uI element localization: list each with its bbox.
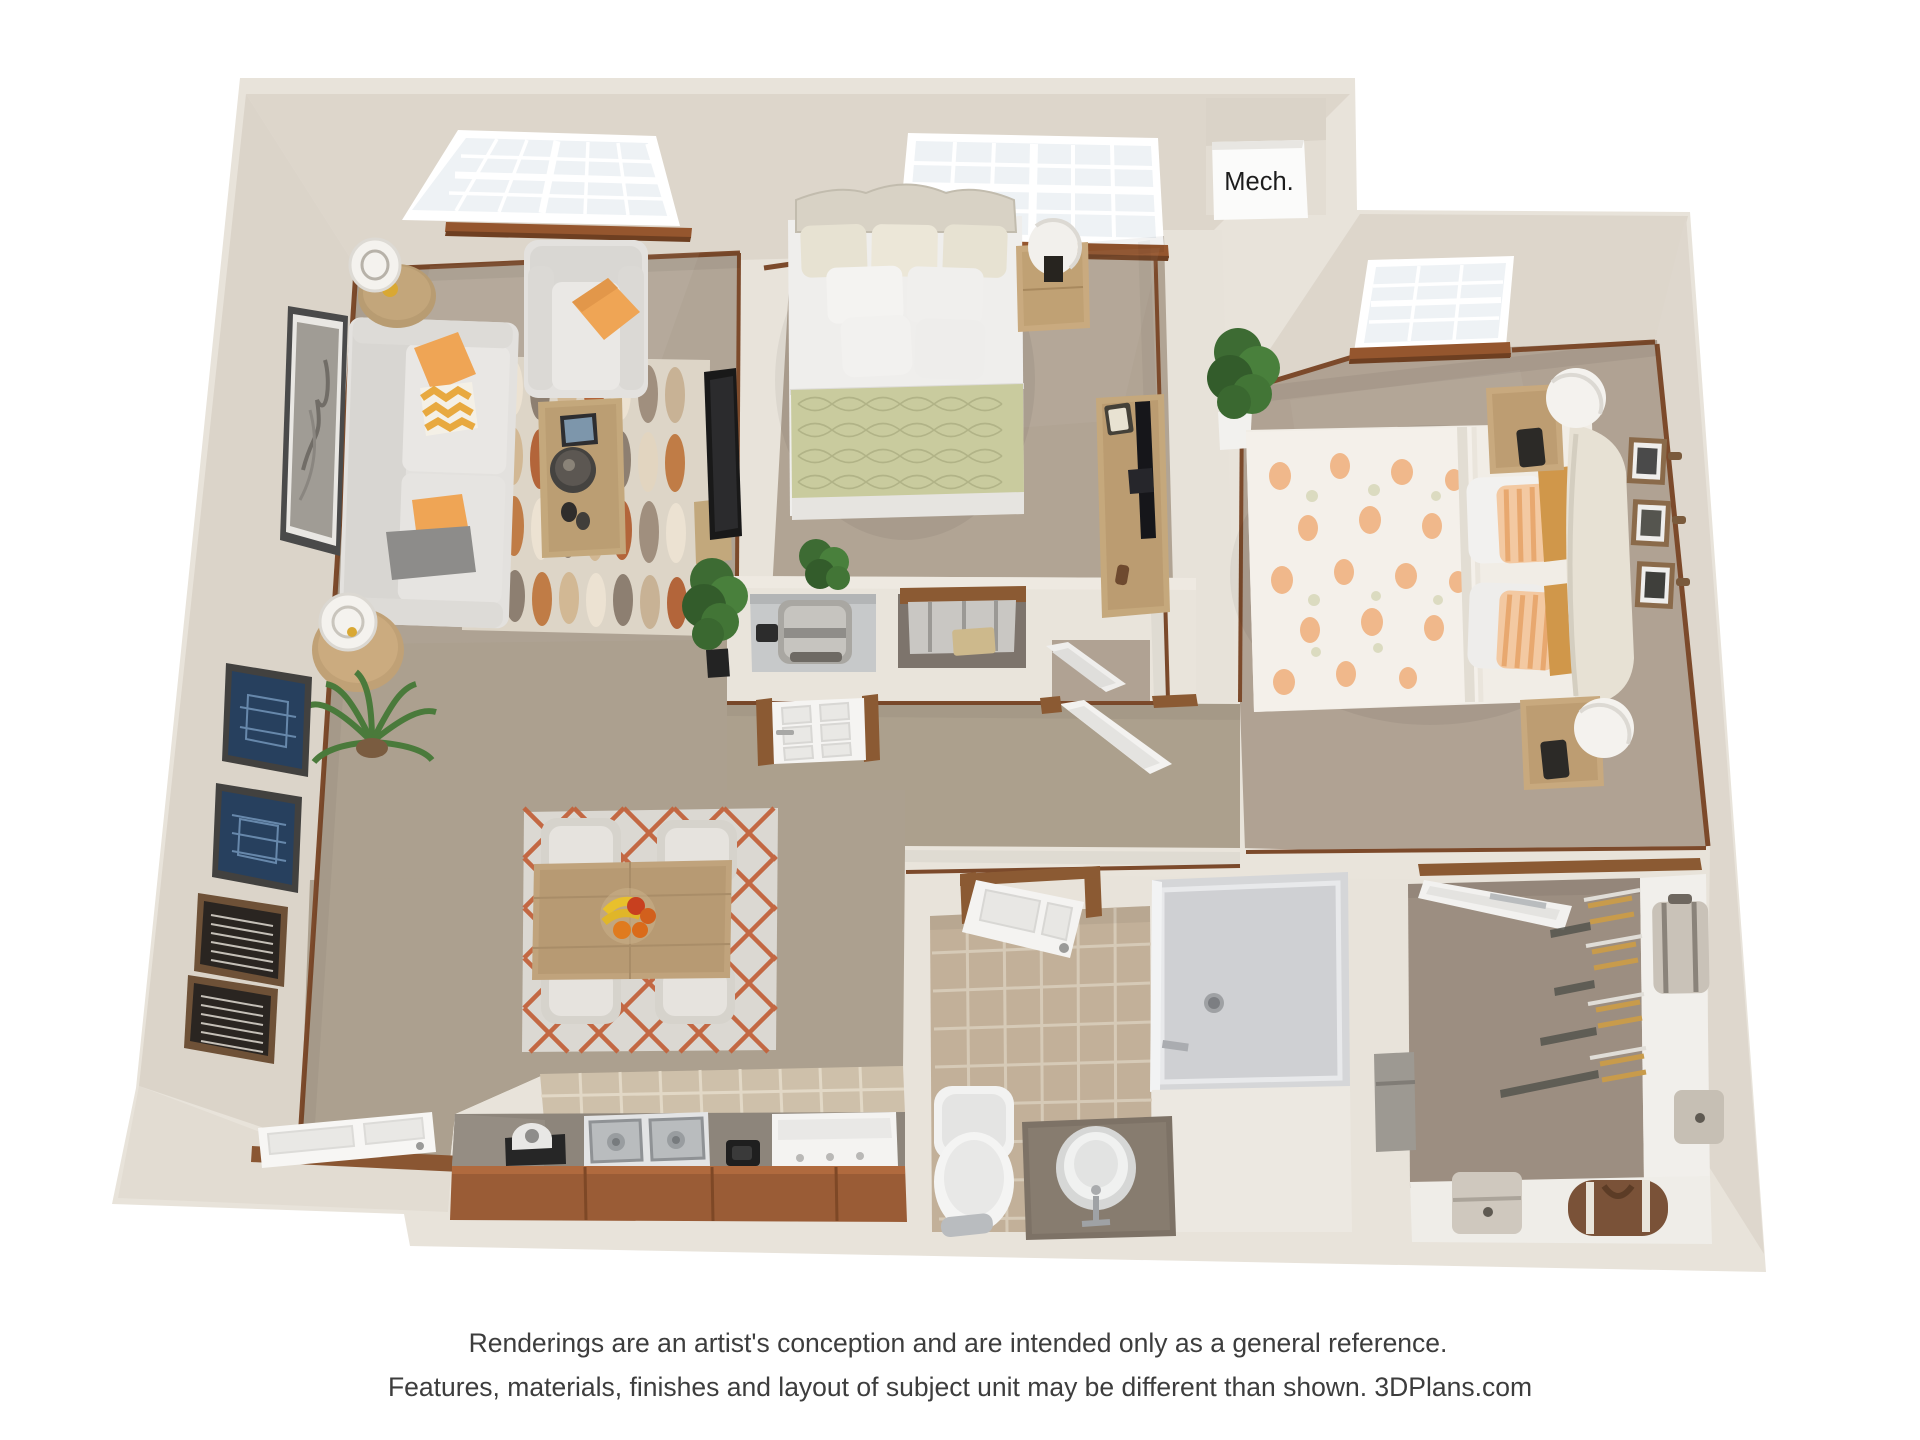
svg-text:Mech.: Mech. <box>1224 168 1293 196</box>
svg-text:Features, materials, finishes: Features, materials, finishes and layout… <box>388 1372 1532 1402</box>
svg-text:Renderings are an artist's con: Renderings are an artist's conception an… <box>469 1328 1448 1358</box>
